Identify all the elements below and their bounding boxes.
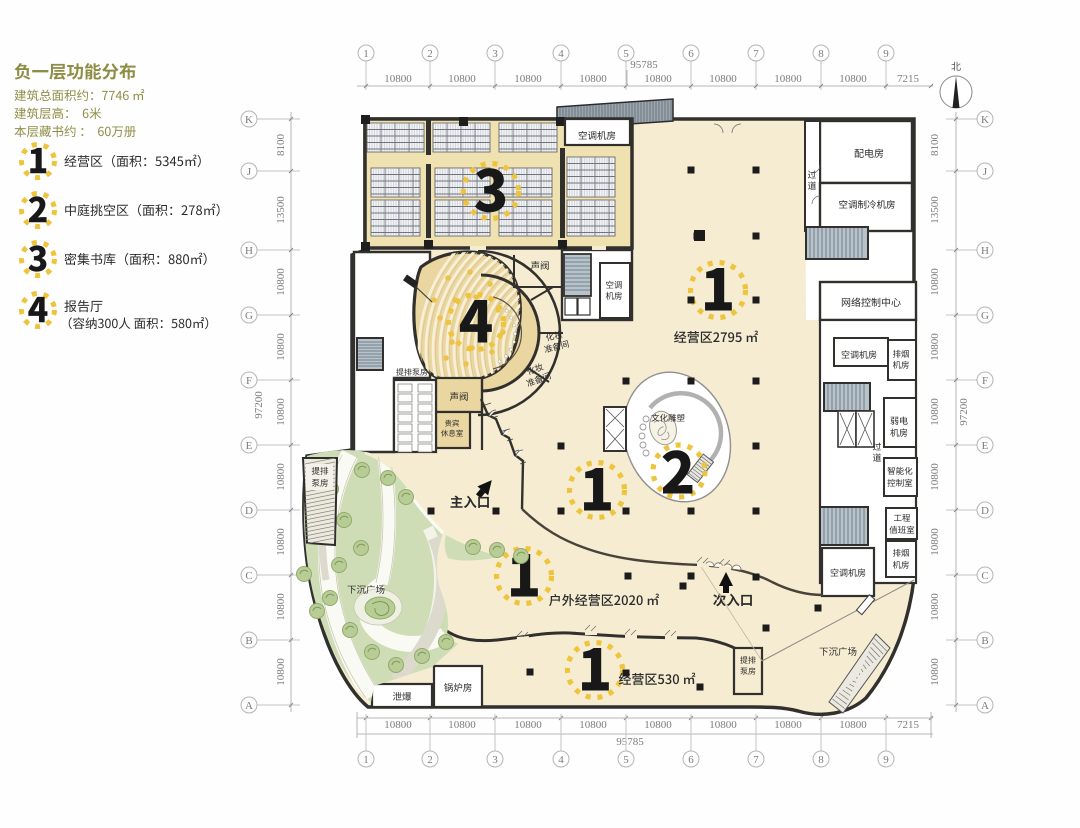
svg-text:10800: 10800	[275, 658, 287, 686]
svg-text:7: 7	[753, 754, 759, 766]
svg-text:10800: 10800	[929, 333, 941, 361]
svg-text:97200: 97200	[253, 391, 265, 419]
svg-text:J: J	[247, 166, 252, 178]
svg-text:10800: 10800	[644, 73, 672, 85]
svg-text:H: H	[981, 245, 989, 257]
svg-text:G: G	[981, 310, 989, 322]
svg-text:10800: 10800	[275, 398, 287, 426]
svg-text:8: 8	[818, 48, 824, 60]
svg-text:F: F	[246, 375, 252, 387]
svg-text:E: E	[982, 440, 989, 452]
svg-text:10800: 10800	[929, 398, 941, 426]
svg-text:10800: 10800	[929, 593, 941, 621]
svg-text:13500: 13500	[929, 196, 941, 224]
svg-text:A: A	[981, 700, 989, 712]
svg-text:10800: 10800	[448, 73, 476, 85]
svg-text:10800: 10800	[774, 73, 802, 85]
svg-text:8100: 8100	[275, 134, 287, 157]
svg-text:D: D	[245, 505, 253, 517]
svg-text:4: 4	[558, 48, 564, 60]
svg-text:C: C	[245, 570, 252, 582]
svg-text:K: K	[245, 114, 253, 126]
svg-text:10800: 10800	[929, 463, 941, 491]
svg-text:A: A	[245, 700, 253, 712]
svg-text:C: C	[981, 570, 988, 582]
svg-text:9: 9	[883, 754, 889, 766]
svg-text:3: 3	[492, 48, 498, 60]
svg-text:D: D	[981, 505, 989, 517]
svg-text:10800: 10800	[929, 268, 941, 296]
svg-text:E: E	[246, 440, 253, 452]
svg-text:10800: 10800	[275, 333, 287, 361]
svg-text:10800: 10800	[929, 528, 941, 556]
svg-text:10800: 10800	[644, 719, 672, 731]
svg-text:5: 5	[623, 48, 629, 60]
svg-text:10800: 10800	[448, 719, 476, 731]
svg-text:10800: 10800	[514, 719, 542, 731]
svg-text:10800: 10800	[709, 73, 737, 85]
svg-text:4: 4	[558, 754, 564, 766]
svg-text:10800: 10800	[709, 719, 737, 731]
svg-text:10800: 10800	[384, 73, 412, 85]
svg-text:7215: 7215	[897, 719, 920, 731]
svg-text:97200: 97200	[958, 398, 970, 426]
svg-text:3: 3	[492, 754, 498, 766]
svg-text:95785: 95785	[616, 736, 644, 748]
svg-text:13500: 13500	[275, 196, 287, 224]
svg-text:1: 1	[363, 754, 369, 766]
svg-text:10800: 10800	[275, 593, 287, 621]
svg-text:10800: 10800	[579, 719, 607, 731]
svg-text:5: 5	[623, 754, 629, 766]
svg-text:F: F	[982, 375, 988, 387]
svg-text:J: J	[983, 166, 988, 178]
svg-text:B: B	[981, 635, 988, 647]
svg-text:95785: 95785	[630, 59, 658, 71]
svg-text:10800: 10800	[839, 719, 867, 731]
svg-text:K: K	[981, 114, 989, 126]
svg-text:7215: 7215	[897, 73, 920, 85]
svg-text:G: G	[245, 310, 253, 322]
svg-text:10800: 10800	[384, 719, 412, 731]
svg-text:10800: 10800	[579, 73, 607, 85]
svg-text:7: 7	[753, 48, 759, 60]
svg-text:10800: 10800	[275, 268, 287, 296]
svg-text:10800: 10800	[275, 528, 287, 556]
svg-text:8100: 8100	[929, 134, 941, 157]
svg-text:2: 2	[427, 48, 433, 60]
svg-text:9: 9	[883, 48, 889, 60]
svg-text:10800: 10800	[774, 719, 802, 731]
svg-text:10800: 10800	[275, 463, 287, 491]
svg-text:6: 6	[688, 48, 694, 60]
svg-text:10800: 10800	[929, 658, 941, 686]
svg-text:6: 6	[688, 754, 694, 766]
svg-text:10800: 10800	[839, 73, 867, 85]
svg-text:H: H	[245, 245, 253, 257]
svg-text:2: 2	[427, 754, 433, 766]
svg-text:1: 1	[363, 48, 369, 60]
svg-text:10800: 10800	[514, 73, 542, 85]
svg-text:8: 8	[818, 754, 824, 766]
svg-text:B: B	[245, 635, 252, 647]
